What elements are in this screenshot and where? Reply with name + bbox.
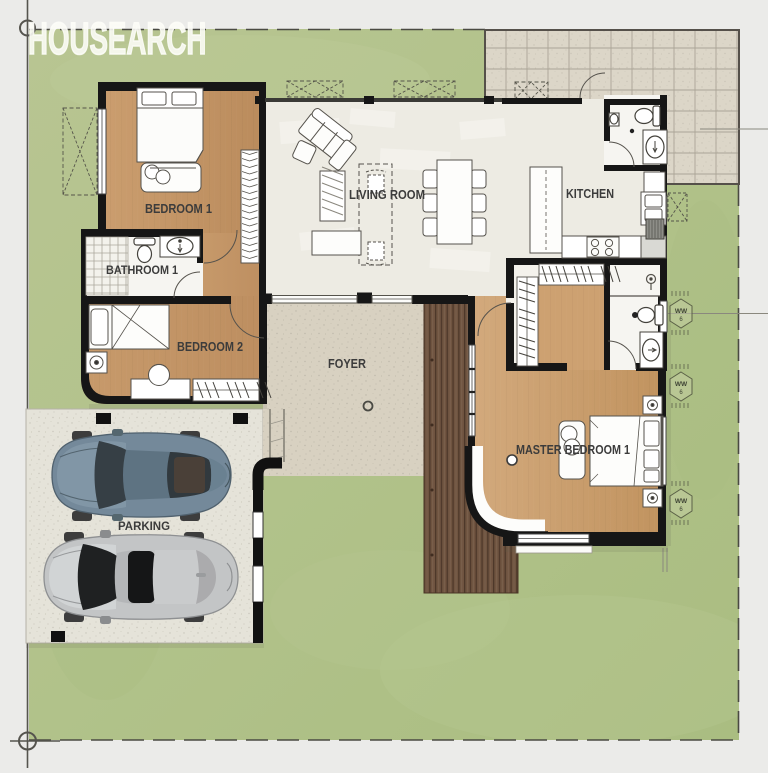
svg-text:BEDROOM 1: BEDROOM 1 [145, 202, 212, 216]
svg-text:WW: WW [675, 381, 688, 388]
svg-text:BEDROOM 2: BEDROOM 2 [177, 340, 243, 354]
svg-text:LIVING ROOM: LIVING ROOM [349, 188, 425, 202]
svg-text:WW: WW [675, 498, 688, 505]
svg-text:MASTER BEDROOM 1: MASTER BEDROOM 1 [516, 443, 630, 457]
svg-text:HOUSEARCH: HOUSEARCH [28, 13, 206, 64]
svg-text:KITCHEN: KITCHEN [566, 187, 614, 201]
svg-text:BATHROOM 1: BATHROOM 1 [106, 263, 178, 277]
svg-text:FOYER: FOYER [328, 357, 366, 371]
svg-text:WW: WW [675, 308, 688, 315]
svg-text:PARKING: PARKING [118, 521, 170, 533]
